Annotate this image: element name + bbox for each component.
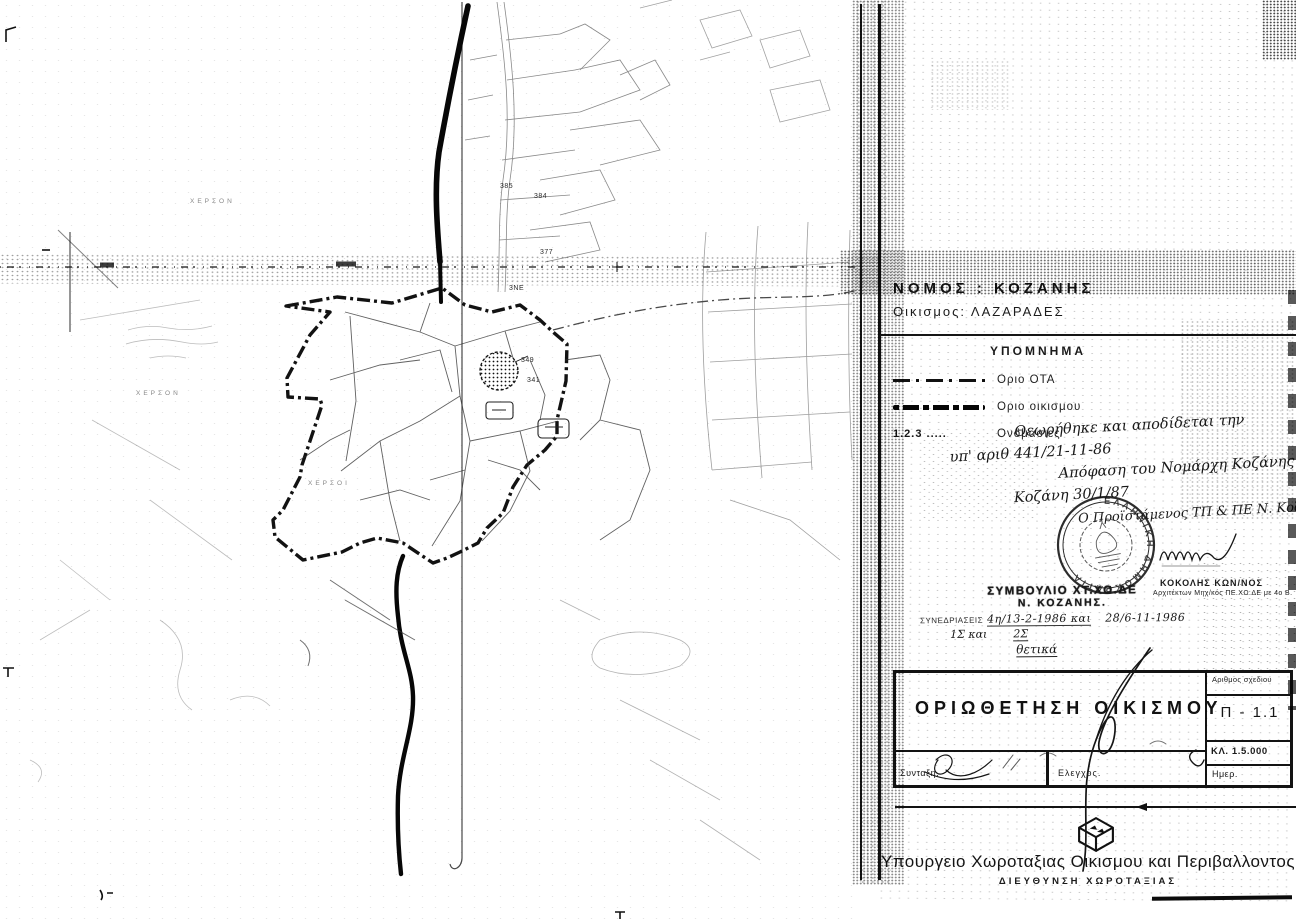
map-label: ΧΕΡΣΟΝ: [136, 390, 181, 397]
map-label: 377: [540, 249, 553, 256]
map-label: ΧΕΡΣΟΙ: [308, 480, 350, 487]
map-label: 3ΝΕ: [509, 285, 524, 292]
map-label: 385: [500, 183, 513, 190]
prepared-signature: [925, 755, 992, 780]
ink-hook: [1190, 750, 1204, 766]
map-label: 384: [534, 193, 547, 200]
map-label: ΧΕΡΣΟΝ: [190, 198, 235, 205]
panel-ink-overlay: [880, 0, 1296, 923]
stamp-signature: [1160, 534, 1236, 560]
check-signature: [1083, 648, 1150, 871]
map-label: 349: [521, 357, 534, 364]
divider-arrow: [1136, 803, 1147, 811]
map-labels: 3853843773ΝΕ349341ΧΕΡΣΟΝΧΕΡΣΟΝΧΕΡΣΟΙ: [0, 0, 880, 923]
map-label: 341: [527, 377, 540, 384]
scanned-map-sheet: 3853843773ΝΕ349341ΧΕΡΣΟΝΧΕΡΣΟΝΧΕΡΣΟΙ ΝΟΜ…: [0, 0, 1296, 923]
